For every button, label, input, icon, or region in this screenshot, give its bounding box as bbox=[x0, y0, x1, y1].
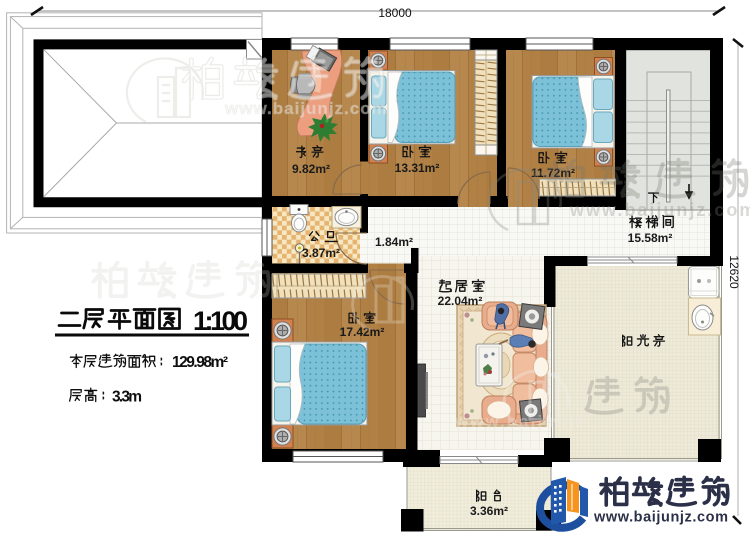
svg-text:129.98m²: 129.98m² bbox=[172, 354, 228, 371]
svg-text:3.87m²: 3.87m² bbox=[302, 246, 340, 260]
svg-text:www.baijunjz.com: www.baijunjz.com bbox=[593, 510, 728, 526]
svg-text:www.baijunjz.com: www.baijunjz.com bbox=[569, 200, 750, 220]
svg-text:1.84m²: 1.84m² bbox=[375, 235, 413, 249]
svg-text:15.58m²: 15.58m² bbox=[628, 231, 673, 245]
svg-text:12620: 12620 bbox=[727, 255, 741, 289]
svg-text:www.baijunjz: www.baijunjz bbox=[454, 412, 586, 431]
svg-text:22.04m²: 22.04m² bbox=[438, 294, 483, 308]
svg-text:18000: 18000 bbox=[378, 6, 412, 20]
svg-text:www.baijunjz.com: www.baijunjz.com bbox=[224, 99, 388, 118]
svg-text:1:100: 1:100 bbox=[193, 306, 248, 336]
svg-text:17.42m²: 17.42m² bbox=[340, 325, 385, 339]
svg-text:3.3m: 3.3m bbox=[112, 389, 142, 406]
svg-text:3.36m²: 3.36m² bbox=[470, 504, 508, 518]
svg-text:9.82m²: 9.82m² bbox=[292, 162, 330, 176]
svg-text:13.31m²: 13.31m² bbox=[395, 161, 440, 175]
